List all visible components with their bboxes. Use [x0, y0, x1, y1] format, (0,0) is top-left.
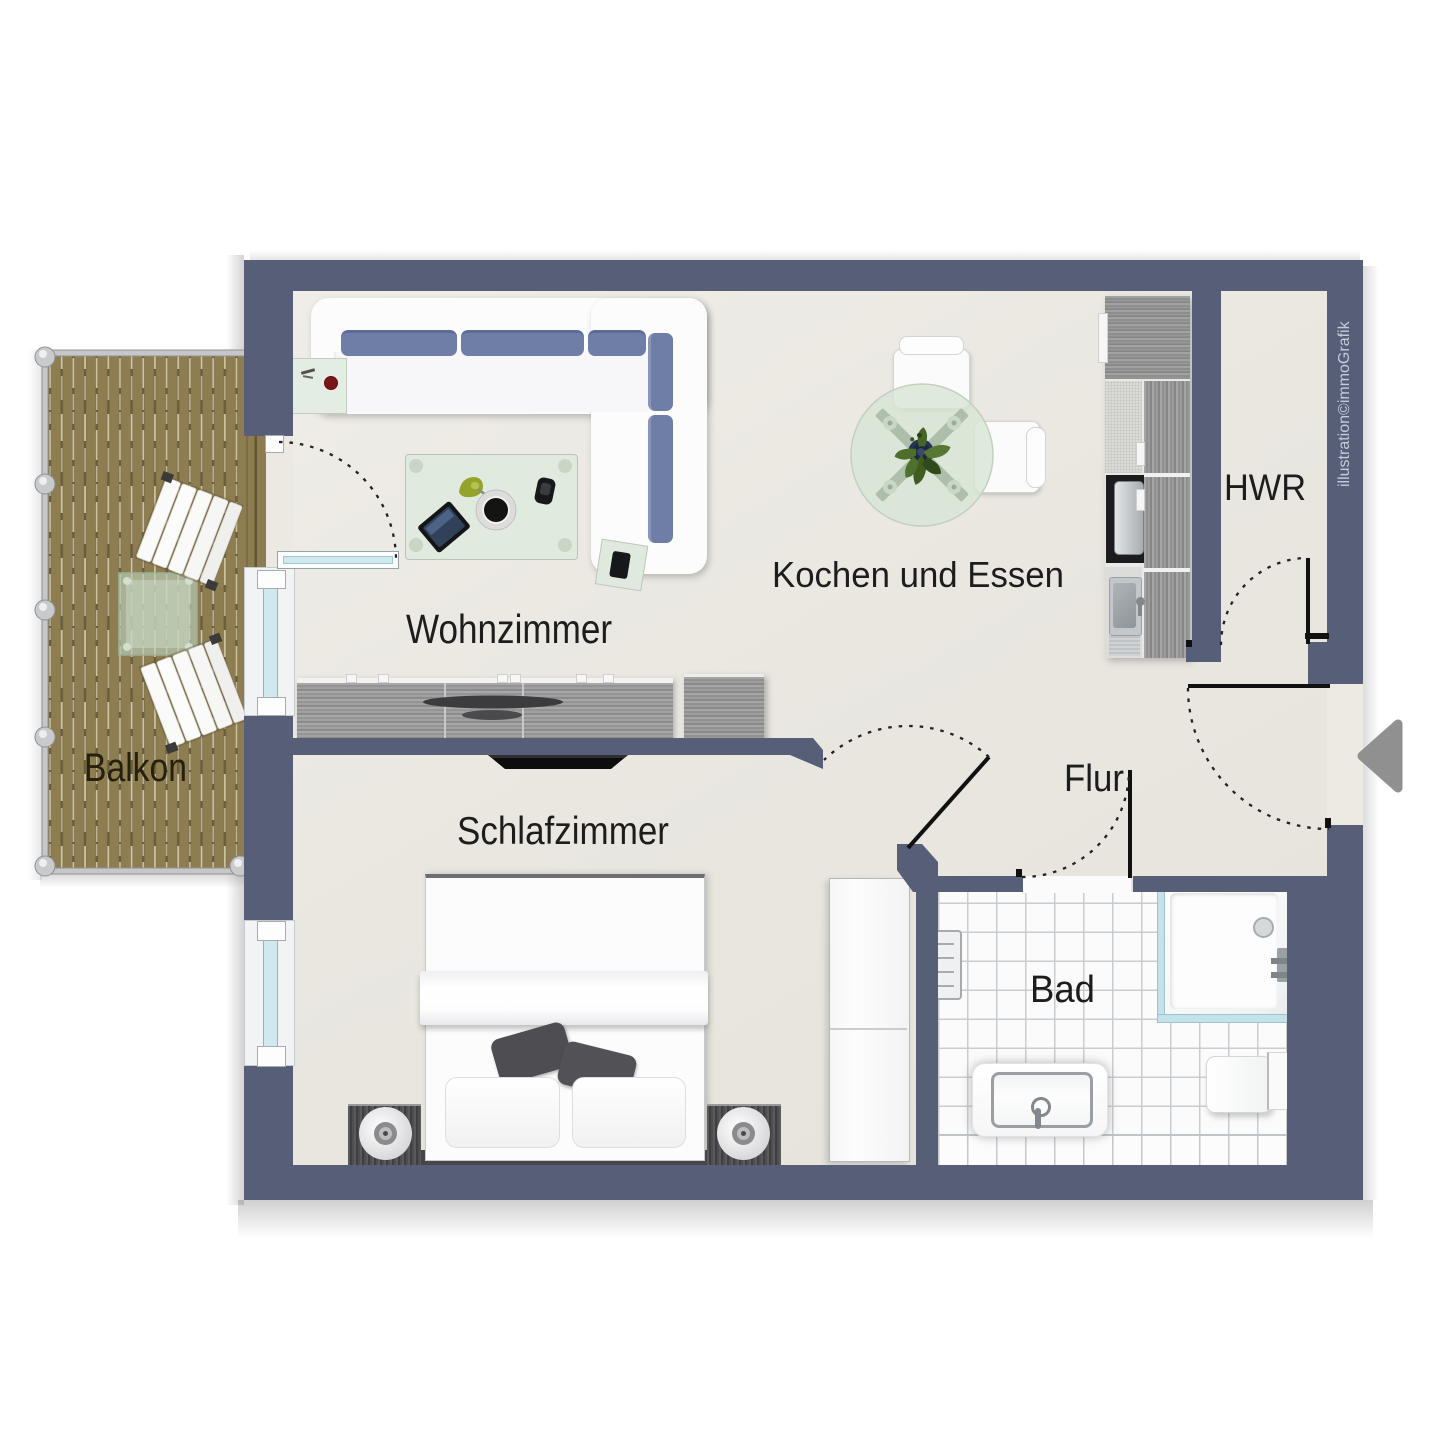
svg-text:illustration©immoGrafik: illustration©immoGrafik: [1336, 320, 1353, 487]
